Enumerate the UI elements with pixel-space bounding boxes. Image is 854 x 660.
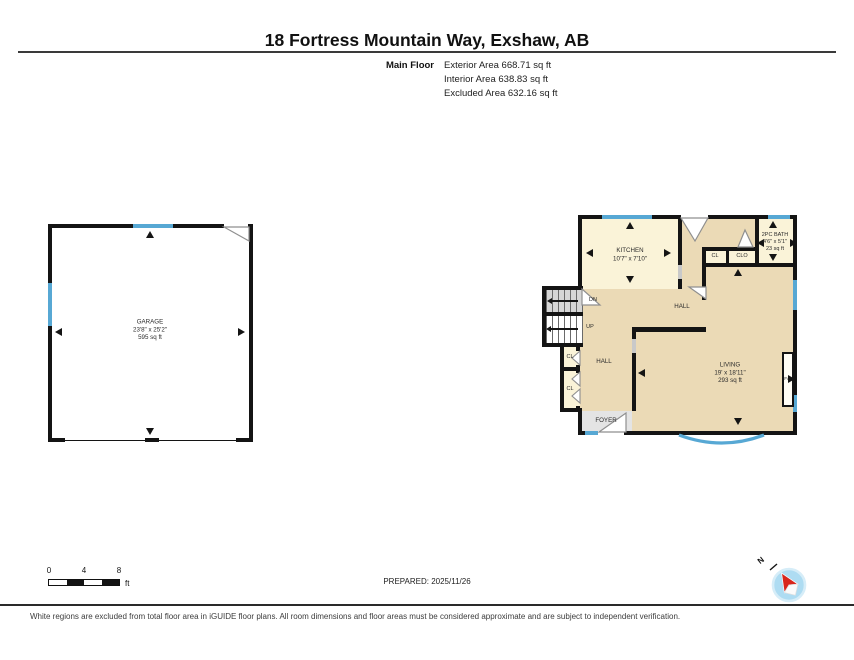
scale-unit: ft [125,579,129,588]
scale-segment [67,580,85,585]
scale-segment [102,580,120,585]
dimension-arrow-left-icon [55,328,62,336]
dimension-arrow-up-icon [769,221,777,228]
stair-label-up: UP [586,324,594,331]
dimension-arrow-right-icon [790,239,797,247]
dimension-arrow-up-icon [146,231,154,238]
room-name: 2PC BATH [762,232,788,239]
scale-tick: 0 [47,566,51,575]
dimension-arrow-right-icon [664,249,671,257]
room-dimensions: 19' x 18'11" [714,369,745,377]
room-label-garage: GARAGE 23'8" x 25'2" 595 sq ft [133,318,167,341]
scale-segment [49,580,67,585]
compass-needle-mark [770,564,777,570]
disclaimer-text: White regions are excluded from total fl… [30,612,840,621]
door-swing [224,227,249,241]
scale-tick: 4 [82,566,86,575]
room-label-living: LIVING 19' x 18'11" 293 sq ft [714,361,745,384]
dimension-arrow-up-icon [626,222,634,229]
room-label-closet: CL [566,386,573,393]
stair-label-down: DN [589,297,597,304]
room-dimensions: 10'7" x 7'10" [613,255,647,263]
room-label-hall-upper: HALL [674,303,690,311]
dimension-arrow-right-icon [788,375,795,383]
floor-plan-main: F/P KITCHEN 10'7" x 7'10" 2PC BATH 4'6" … [542,215,798,455]
dimension-arrow-down-icon [626,276,634,283]
door-swing [689,287,706,299]
area-values: Exterior Area 668.71 sq ft Interior Area… [444,59,558,101]
area-summary: Main Floor Exterior Area 668.71 sq ft In… [0,59,854,101]
scale-bar [48,579,120,586]
exterior-area: Exterior Area 668.71 sq ft [444,59,558,73]
scale-tick: 8 [117,566,121,575]
floor-plan-garage: GARAGE 23'8" x 25'2" 595 sq ft [48,224,253,442]
room-area: 23 sq ft [762,245,788,252]
room-name: GARAGE [133,318,167,326]
room-label-closet: CL [566,354,573,361]
door-swing [681,218,708,241]
title-divider [18,51,836,53]
closet-door-fold [572,372,580,386]
dimension-arrow-up-icon [734,269,742,276]
room-area: 293 sq ft [714,377,745,385]
room-label-bath: 2PC BATH 4'6" x 5'1" 23 sq ft [762,232,788,253]
room-name: KITCHEN [613,247,647,255]
compass-north-label: N [756,555,766,566]
dimension-arrow-left-icon [586,249,593,257]
page-title: 18 Fortress Mountain Way, Exshaw, AB [0,30,854,51]
footer-divider [0,604,854,606]
prepared-date: PREPARED: 2025/11/26 [383,577,470,586]
dimension-arrow-down-icon [769,254,777,261]
room-label-foyer: FOYER [595,417,616,425]
door-swing [738,230,753,247]
room-label-closet: CLO [736,253,747,260]
dimension-arrow-down-icon [734,418,742,425]
excluded-area: Excluded Area 632.16 sq ft [444,87,558,101]
room-label-kitchen: KITCHEN 10'7" x 7'10" [613,247,647,263]
room-dimensions: 23'8" x 25'2" [133,326,167,334]
bow-window-arc [679,435,764,443]
interior-area: Interior Area 638.83 sq ft [444,73,558,87]
room-area: 595 sq ft [133,334,167,342]
room-name: LIVING [714,361,745,369]
room-label-hall-lower: HALL [596,358,612,366]
floor-label: Main Floor [0,59,434,101]
scale-segment [84,580,102,585]
room-label-closet: CL [711,253,718,260]
room-dimensions: 4'6" x 5'1" [762,239,788,246]
floorplan-page: 18 Fortress Mountain Way, Exshaw, AB Mai… [0,0,854,660]
dimension-arrow-left-icon [638,369,645,377]
dimension-arrow-right-icon [238,328,245,336]
compass-icon [766,560,812,606]
dimension-arrow-down-icon [146,428,154,435]
